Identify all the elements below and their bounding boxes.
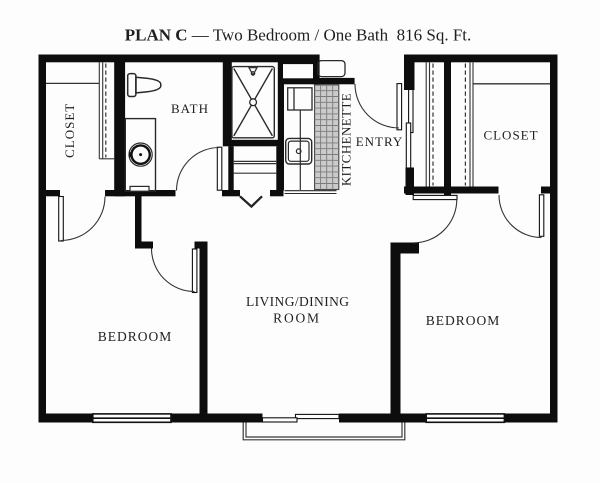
svg-text:CLOSET: CLOSET [62,103,77,158]
svg-text:PLAN C — Two Bedroom / One Bat: PLAN C — Two Bedroom / One Bath 816 Sq. … [125,26,472,45]
svg-text:CLOSET: CLOSET [483,128,538,143]
svg-text:BEDROOM: BEDROOM [98,329,173,344]
svg-text:LIVING/DINING: LIVING/DINING [246,294,349,309]
svg-text:BATH: BATH [171,101,209,116]
svg-text:ENTRY: ENTRY [356,134,404,149]
svg-text:BEDROOM: BEDROOM [426,313,501,328]
svg-text:ROOM: ROOM [273,310,321,325]
svg-text:KITCHENETTE: KITCHENETTE [339,93,354,186]
